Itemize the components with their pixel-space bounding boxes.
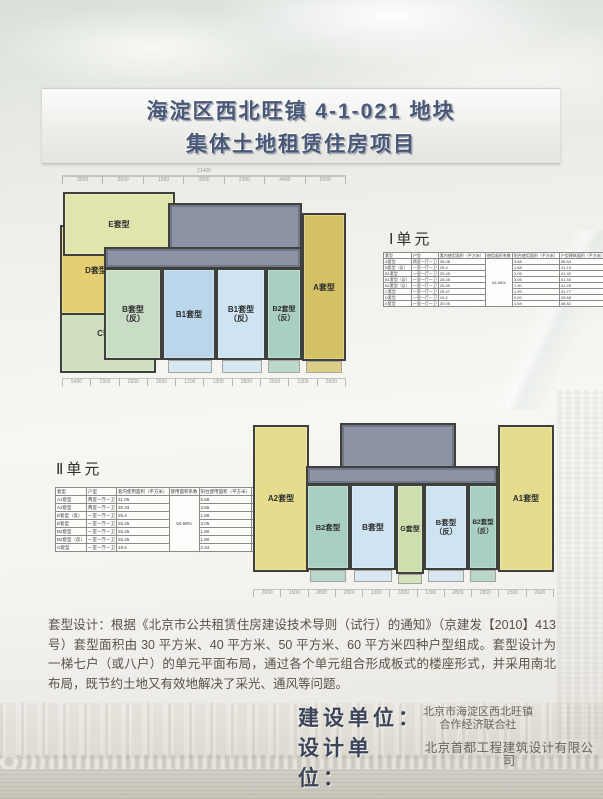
plan1-unit-B1-rev-sub: （反） <box>229 314 253 323</box>
plan1-unit-B1-label: B1套型 <box>176 310 202 319</box>
unit1-section-label: Ⅰ单元 <box>389 228 432 249</box>
plan2-unit-B-rev-sub: （反） <box>435 527 458 536</box>
plan2-unit-A1: A1套型 <box>498 425 554 572</box>
plan1-balcony-5 <box>306 361 342 373</box>
plan2-unit-B-rev: B套型 （反） <box>424 484 468 570</box>
title-banner: 海淀区西北旺镇 4-1-021 地块 集体土地租赁住房项目 <box>42 88 560 164</box>
plan2-balcony-2 <box>354 570 392 582</box>
plan1-bottom-dimensions: 5400130026002600130013002600260013002600 <box>62 378 346 386</box>
plan1-top-dimensions: 3500360015002800230044005000 <box>62 176 346 184</box>
plan2-unit-B: B套型 <box>350 484 396 570</box>
plan1-unit-B-rev-sub: （反） <box>121 314 145 323</box>
poster-title-line1: 海淀区西北旺镇 4-1-021 地块 <box>146 95 455 125</box>
plan1-unit-B2-rev: B2套型 （反） <box>266 268 302 360</box>
plan1-unit-B1-rev: B1套型 （反） <box>216 268 266 360</box>
plan2-unit-G: G套型 <box>396 484 424 574</box>
designer-label: 设计单位： <box>298 732 420 792</box>
plan2-balcony-3 <box>398 574 422 584</box>
plan1-unit-B-rev: B套型 （反） <box>104 268 162 360</box>
plan2-unit-B-rev-label: B套型 <box>436 518 456 527</box>
plan2-unit-A2: A2套型 <box>253 425 309 572</box>
plan2-balcony-4 <box>428 570 464 582</box>
unit2-section-label: Ⅱ单元 <box>56 458 102 479</box>
builder-row: 建设单位： 北京市海淀区西北旺镇 合作经济联合社 <box>298 702 598 732</box>
plan2-unit-G-label: G套型 <box>400 525 419 534</box>
poster-canvas: 海淀区西北旺镇 4-1-021 地块 集体土地租赁住房项目 21400 3500… <box>0 0 603 799</box>
plan1-unit-B1-rev-label: B1套型 <box>228 305 254 314</box>
plan1-balcony-4 <box>268 360 300 373</box>
designer-row: 设计单位： 北京首都工程建筑设计有限公司 <box>298 732 598 792</box>
plan1-unit-B2-rev-sub: （反） <box>274 314 295 323</box>
plan1-balcony-2 <box>168 360 212 373</box>
background-buildings-right <box>557 390 603 739</box>
plan2-unit-A2-label: A2套型 <box>268 494 294 503</box>
plan1-unit-B1: B1套型 <box>162 268 216 360</box>
plan1-corridor <box>104 247 302 269</box>
plan2-balcony-1 <box>310 570 346 582</box>
plan2-unit-B2-label: B2套型 <box>316 523 341 532</box>
builder-value-line2: 合作经济联合社 <box>423 719 533 732</box>
plan2-balcony-5 <box>470 570 496 582</box>
plan1-total-dimension: 21400 <box>62 168 346 176</box>
plan1-unit-E-label: E套型 <box>108 220 129 229</box>
plan2-bottom-dimensions: 2600150028002800130033001300280028001500… <box>253 589 554 597</box>
plan2-unit-A1-label: A1套型 <box>513 494 539 503</box>
plan2-unit-B2-rev: B2套型 （反） <box>468 484 498 570</box>
builder-label: 建设单位： <box>298 702 423 732</box>
plan1-balcony-3 <box>222 360 262 373</box>
designer-value: 北京首都工程建筑设计有限公司 <box>420 732 598 768</box>
plan1-unit-A: A套型 <box>302 213 346 361</box>
plan2-unit-B-label: B套型 <box>362 523 384 532</box>
plan2-unit-B2-rev-sub: （反） <box>473 527 493 536</box>
plan1-unit-A-label: A套型 <box>313 283 335 292</box>
unit1-data-table: 套型户型套内使用面积（平方米）使用面积系数阳台使用面积（平方米）户型建筑面积（平… <box>383 252 603 307</box>
design-description: 套型设计：根据《北京市公共租赁住房建设技术导则（试行）的通知》（京建发【2010… <box>48 616 556 694</box>
plan2-unit-B2-rev-label: B2套型 <box>472 518 493 527</box>
plan1-unit-B-rev-label: B套型 <box>122 305 144 314</box>
credits-block: 建设单位： 北京市海淀区西北旺镇 合作经济联合社 设计单位： 北京首都工程建筑设… <box>298 702 598 792</box>
poster-title-line2: 集体土地租赁住房项目 <box>186 128 416 158</box>
plan1-unit-B2-rev-label: B2套型 <box>273 305 296 314</box>
builder-value-line1: 北京市海淀区西北旺镇 <box>423 706 533 719</box>
plan2-unit-B2: B2套型 <box>306 484 350 570</box>
builder-value: 北京市海淀区西北旺镇 合作经济联合社 <box>423 702 533 732</box>
plan2-corridor <box>306 466 498 485</box>
